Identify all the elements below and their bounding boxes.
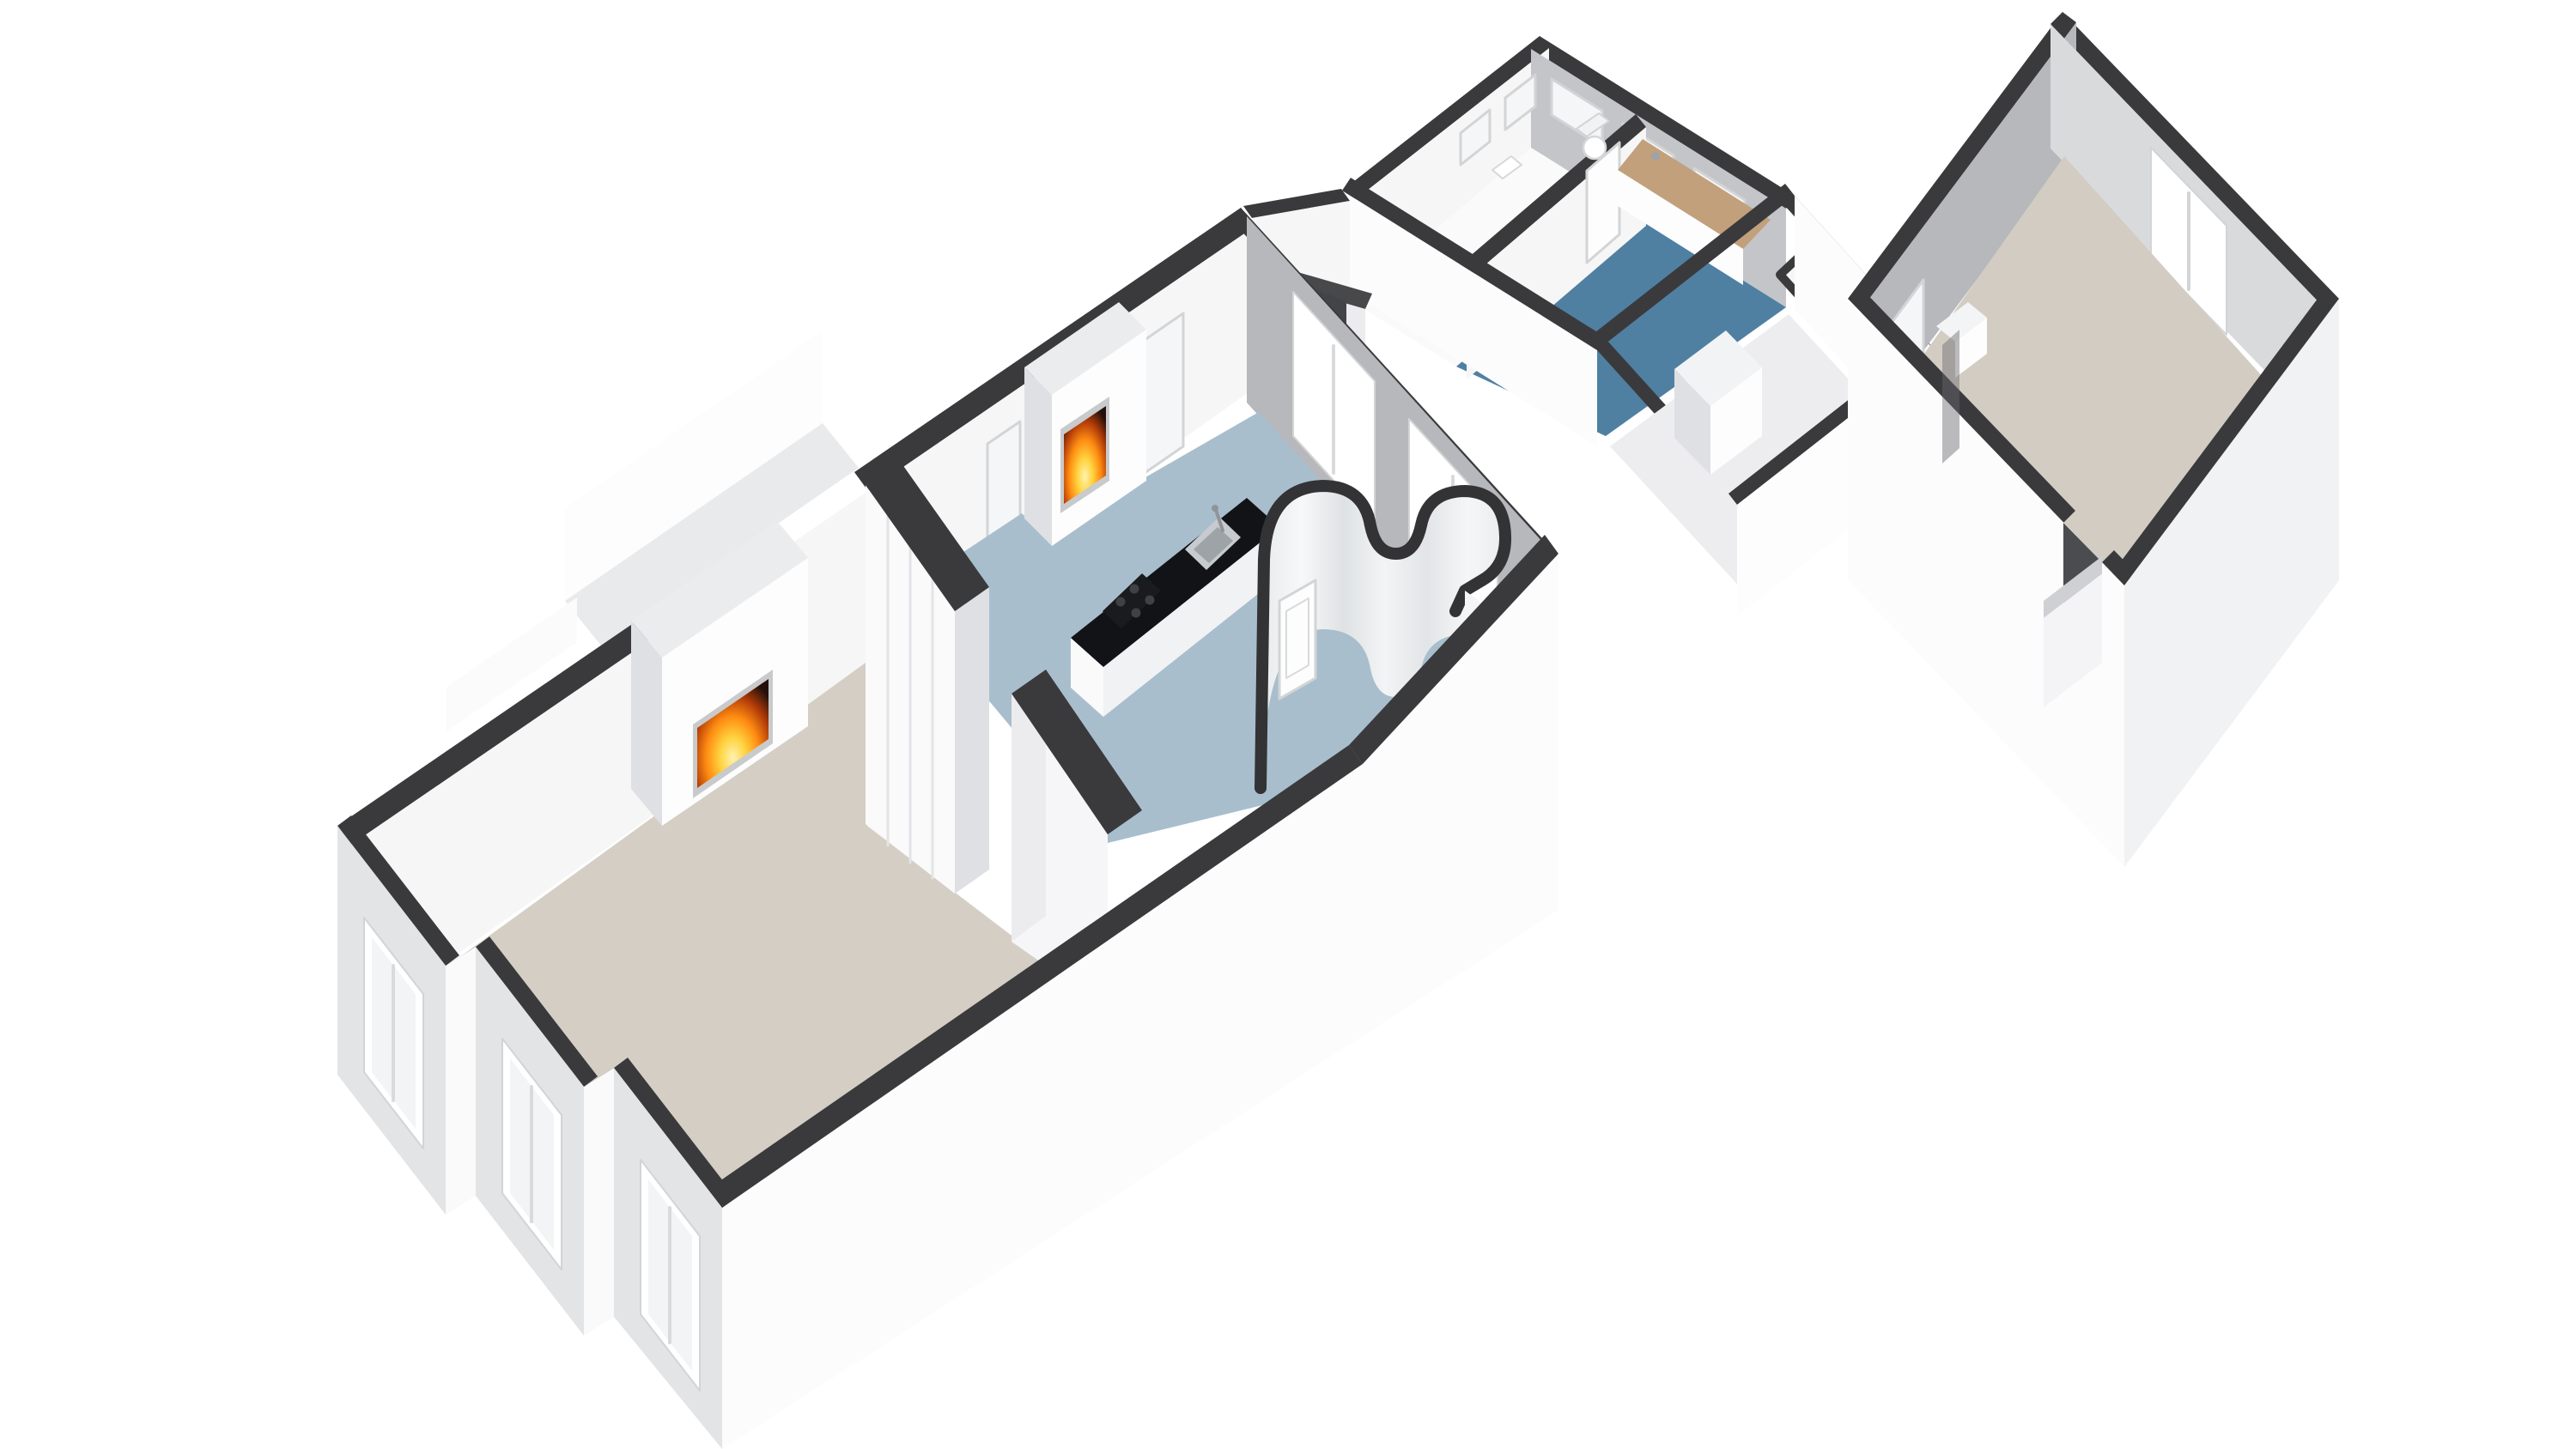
hob-burner-4	[1145, 596, 1155, 605]
bathtub-faucet	[1651, 152, 1660, 161]
toilet-bowl	[1583, 136, 1606, 159]
hob-burner-3	[1132, 609, 1141, 618]
floorplan-3d-render	[0, 0, 2576, 1449]
curved-wall-door	[1279, 580, 1315, 699]
kitchen-fireplace-side	[1024, 367, 1052, 546]
bay-step-face-1	[446, 947, 476, 1215]
hob-burner-2	[1130, 585, 1139, 594]
sink-faucet-head	[1212, 505, 1218, 512]
hob-burner-1	[1116, 597, 1126, 607]
floorplan-canvas	[0, 0, 2576, 1449]
bay-step-face-2	[584, 1068, 614, 1336]
ensuite-stub-nw-jamb	[955, 587, 989, 894]
gap-slot	[1942, 330, 1959, 464]
